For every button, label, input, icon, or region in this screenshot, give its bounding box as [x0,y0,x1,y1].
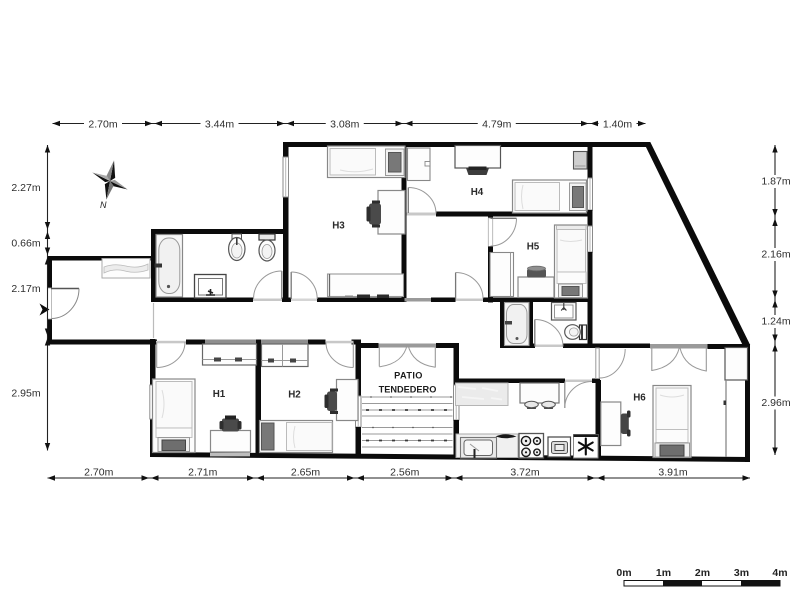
svg-text:3.72m: 3.72m [510,467,539,479]
svg-text:H3: H3 [332,221,345,232]
svg-text:H2: H2 [288,390,301,401]
svg-text:4m: 4m [772,567,787,579]
svg-text:1.87m: 1.87m [761,176,790,188]
svg-text:2.16m: 2.16m [761,249,790,261]
svg-text:H5: H5 [527,242,540,253]
svg-text:2.65m: 2.65m [291,467,320,479]
svg-text:2.96m: 2.96m [761,397,790,409]
svg-text:3.91m: 3.91m [658,467,687,479]
svg-text:H4: H4 [471,187,484,198]
svg-text:1m: 1m [656,567,671,579]
svg-text:1.24m: 1.24m [761,316,790,328]
svg-text:2.71m: 2.71m [188,467,217,479]
svg-text:3.08m: 3.08m [330,118,359,130]
svg-text:H1: H1 [213,389,226,400]
svg-text:3.44m: 3.44m [205,118,234,130]
svg-text:PATIO: PATIO [394,371,423,381]
svg-text:N: N [100,200,107,210]
svg-text:H6: H6 [633,393,646,404]
svg-text:3m: 3m [734,567,749,579]
svg-text:2.27m: 2.27m [11,182,40,194]
svg-text:0.66m: 0.66m [11,238,40,250]
svg-text:4.79m: 4.79m [482,118,511,130]
svg-text:2.56m: 2.56m [390,467,419,479]
svg-text:2.95m: 2.95m [11,388,40,400]
svg-text:1.40m: 1.40m [603,118,632,130]
svg-text:2.17m: 2.17m [11,283,40,295]
svg-text:2.70m: 2.70m [88,118,117,130]
svg-text:2.70m: 2.70m [84,467,113,479]
svg-text:2m: 2m [695,567,710,579]
svg-text:TENDEDERO: TENDEDERO [379,385,437,395]
svg-text:0m: 0m [616,567,631,579]
